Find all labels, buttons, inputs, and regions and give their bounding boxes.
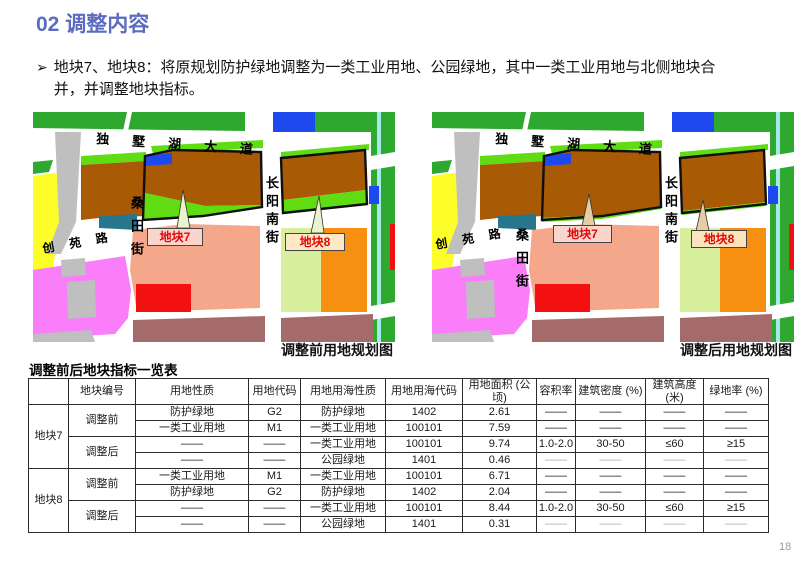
cell: —— [537, 421, 576, 437]
table-row: 地块8 调整前 一类工业用地 M1 一类工业用地 100101 6.71 —— … [29, 469, 769, 485]
map-caption-after: 调整后用地规划图 [680, 340, 792, 360]
cell: 1401 [386, 453, 463, 469]
cell: 一类工业用地 [136, 421, 249, 437]
map-region [466, 280, 495, 319]
col-header-land-code: 用地代码 [249, 379, 301, 405]
map-region [498, 214, 536, 230]
map-region [680, 314, 772, 342]
map-region [33, 160, 53, 174]
cell: —— [249, 437, 301, 453]
cell: 1.0-2.0 [537, 501, 576, 517]
map-region [680, 150, 766, 211]
cell: —— [646, 421, 704, 437]
map-region [532, 316, 664, 342]
cell: —— [537, 517, 576, 533]
cell: 1402 [386, 405, 463, 421]
page-number: 18 [779, 541, 791, 553]
cell: G2 [249, 485, 301, 501]
col-header-sea-use: 用地用海性质 [301, 379, 386, 405]
cell: —— [704, 485, 769, 501]
bullet-arrow-icon: ➢ [36, 57, 48, 101]
cell: 100101 [386, 501, 463, 517]
block7-callout-label: 地块7 [147, 228, 203, 246]
cell: —— [704, 517, 769, 533]
cell: —— [704, 453, 769, 469]
col-header-plot-no: 地块编号 [69, 379, 136, 405]
map-region [768, 186, 778, 204]
page-title: 02 调整内容 [36, 8, 149, 38]
block7-callout-label: 地块7 [553, 225, 612, 243]
cell: —— [576, 469, 646, 485]
cell: —— [646, 453, 704, 469]
cell: —— [249, 517, 301, 533]
cell: 7.59 [463, 421, 537, 437]
cell: 9.74 [463, 437, 537, 453]
map-region [67, 280, 96, 319]
table-row: —— —— 公园绿地 1401 0.31 —— —— —— —— [29, 517, 769, 533]
cell: —— [646, 405, 704, 421]
map-region [460, 258, 485, 277]
land-use-map-after: 独墅湖大道 桑田街 创苑路 长阳南街 地块7 地块8 调整后用地规划图 [432, 112, 794, 342]
cell: 一类工业用地 [301, 437, 386, 453]
cell: ≤60 [646, 437, 704, 453]
cell: M1 [249, 469, 301, 485]
plot-id-cell: 地块7 [29, 405, 69, 469]
cell: G2 [249, 405, 301, 421]
table-row: 一类工业用地 M1 一类工业用地 100101 7.59 —— —— —— —— [29, 421, 769, 437]
map-region [81, 161, 146, 220]
cell: 100101 [386, 421, 463, 437]
cell: ≥15 [704, 437, 769, 453]
cell: —— [576, 485, 646, 501]
map-region [480, 161, 545, 220]
plot-index-table: 地块编号 用地性质 用地代码 用地用海性质 用地用海代码 用地面积 (公顷) 容… [28, 378, 769, 533]
map-region [136, 284, 191, 312]
table-row: 调整后 —— —— 一类工业用地 100101 9.74 1.0-2.0 30-… [29, 437, 769, 453]
cell: M1 [249, 421, 301, 437]
cell: 30-50 [576, 501, 646, 517]
cell: —— [576, 453, 646, 469]
cell: ≥15 [704, 501, 769, 517]
map-region [789, 224, 794, 270]
map-region [432, 160, 452, 174]
cell: 公园绿地 [301, 453, 386, 469]
cell: 1.0-2.0 [537, 437, 576, 453]
cell: ≤60 [646, 501, 704, 517]
cell: 0.31 [463, 517, 537, 533]
cell: —— [576, 405, 646, 421]
cell: —— [136, 517, 249, 533]
plot-id-cell: 地块8 [29, 469, 69, 533]
block8-callout-label: 地块8 [691, 230, 747, 248]
table-row: 防护绿地 G2 防护绿地 1402 2.04 —— —— —— —— [29, 485, 769, 501]
cell: —— [537, 469, 576, 485]
col-header-sea-code: 用地用海代码 [386, 379, 463, 405]
map-region [245, 112, 273, 132]
cell: 6.71 [463, 469, 537, 485]
cell: —— [537, 485, 576, 501]
cell: 防护绿地 [136, 485, 249, 501]
col-header-height: 建筑高度 (米) [646, 379, 704, 405]
map-region [315, 112, 371, 132]
map-region [432, 112, 644, 131]
cell: 防护绿地 [301, 405, 386, 421]
land-use-map-before: 独墅湖大道 桑田街 创苑路 长阳南街 地块7 地块8 调整前用地规划图 [33, 112, 395, 342]
map-region [99, 214, 137, 230]
cell: 一类工业用地 [301, 501, 386, 517]
cell: —— [537, 405, 576, 421]
cell: 公园绿地 [301, 517, 386, 533]
map-region [33, 112, 245, 131]
cell: 8.44 [463, 501, 537, 517]
map-region [369, 186, 379, 204]
map-region [535, 284, 590, 312]
col-header-land-use: 用地性质 [136, 379, 249, 405]
map-region [273, 112, 315, 132]
cell: 100101 [386, 437, 463, 453]
map-caption-before: 调整前用地规划图 [281, 340, 393, 360]
cell: —— [576, 517, 646, 533]
map-region [281, 314, 373, 342]
cell: 100101 [386, 469, 463, 485]
cell: 30-50 [576, 437, 646, 453]
map-region [61, 258, 86, 277]
cell: —— [646, 469, 704, 485]
bullet-text: 地块7、地块8：将原规划防护绿地调整为一类工业用地、公园绿地，其中一类工业用地与… [54, 57, 736, 101]
table-row: 调整后 —— —— 一类工业用地 100101 8.44 1.0-2.0 30-… [29, 501, 769, 517]
cell: 防护绿地 [136, 405, 249, 421]
table-title: 调整前后地块指标一览表 [29, 359, 178, 379]
land-use-map-svg [33, 112, 395, 342]
cell: —— [537, 453, 576, 469]
cell: 一类工业用地 [301, 469, 386, 485]
stage-cell: 调整后 [69, 501, 136, 533]
map-region [133, 316, 265, 342]
table-row: —— —— 公园绿地 1401 0.46 —— —— —— —— [29, 453, 769, 469]
cell: 0.46 [463, 453, 537, 469]
cell: —— [136, 437, 249, 453]
cell: —— [646, 485, 704, 501]
cell: —— [576, 421, 646, 437]
cell: —— [249, 453, 301, 469]
cell: —— [136, 501, 249, 517]
cell: —— [646, 517, 704, 533]
stage-cell: 调整前 [69, 469, 136, 501]
cell: 一类工业用地 [301, 421, 386, 437]
cell: 1401 [386, 517, 463, 533]
col-header-area: 用地面积 (公顷) [463, 379, 537, 405]
block8-callout-label: 地块8 [285, 233, 345, 251]
stage-cell: 调整后 [69, 437, 136, 469]
cell: —— [704, 405, 769, 421]
col-header-blank [29, 379, 69, 405]
table-row: 地块7 调整前 防护绿地 G2 防护绿地 1402 2.61 —— —— —— … [29, 405, 769, 421]
map-region [390, 224, 395, 270]
cell: 2.61 [463, 405, 537, 421]
col-header-green-rate: 绿地率 (%) [704, 379, 769, 405]
table-header-row: 地块编号 用地性质 用地代码 用地用海性质 用地用海代码 用地面积 (公顷) 容… [29, 379, 769, 405]
stage-cell: 调整前 [69, 405, 136, 437]
cell: 防护绿地 [301, 485, 386, 501]
map-region [714, 112, 770, 132]
cell: 2.04 [463, 485, 537, 501]
slide: 02 调整内容 ➢ 地块7、地块8：将原规划防护绿地调整为一类工业用地、公园绿地… [0, 0, 800, 566]
bullet-paragraph: ➢ 地块7、地块8：将原规划防护绿地调整为一类工业用地、公园绿地，其中一类工业用… [36, 57, 736, 101]
cell: —— [704, 421, 769, 437]
cell: —— [136, 453, 249, 469]
col-header-density: 建筑密度 (%) [576, 379, 646, 405]
cell: 1402 [386, 485, 463, 501]
map-region [644, 112, 672, 132]
cell: —— [249, 501, 301, 517]
land-use-map-svg [432, 112, 794, 342]
cell: 一类工业用地 [136, 469, 249, 485]
cell: —— [704, 469, 769, 485]
col-header-far: 容积率 [537, 379, 576, 405]
map-region [672, 112, 714, 132]
